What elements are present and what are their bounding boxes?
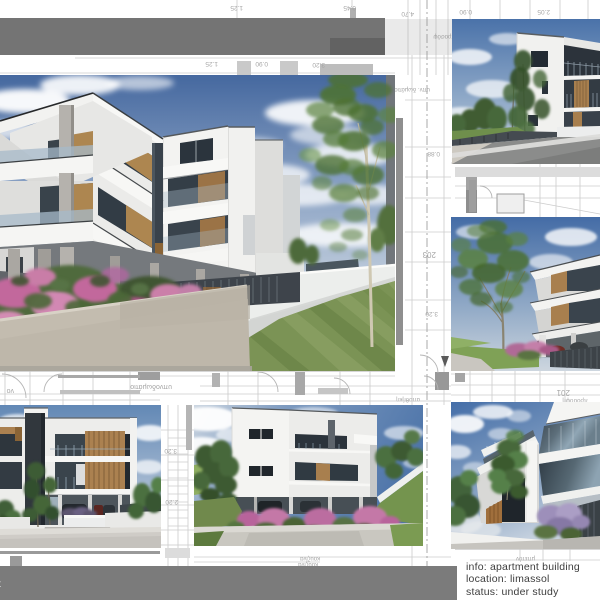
svg-text:0.88: 0.88 [427,150,440,157]
svg-text:1.25: 1.25 [230,4,243,11]
svg-text:κουζίνα: κουζίνα [299,555,320,561]
svg-text:υπν. δωμάτιο: υπν. δωμάτιο [394,86,430,93]
svg-text:1.25: 1.25 [205,60,218,67]
svg-text:0.90: 0.90 [459,8,472,15]
svg-text:3.20: 3.20 [425,310,438,317]
svg-text:3.20: 3.20 [164,447,177,454]
svg-text:203: 203 [422,250,436,259]
svg-text:0.45: 0.45 [343,4,356,11]
svg-text:2.05: 2.05 [537,8,550,15]
svg-text:2.20: 2.20 [165,498,178,505]
svg-text:4.70: 4.70 [401,10,414,17]
svg-text:υπνοδωμάτιο: υπνοδωμάτιο [130,383,172,391]
svg-text:201: 201 [556,388,570,397]
svg-text:0.90: 0.90 [255,60,268,67]
svg-text:αποθήκη: αποθήκη [396,396,420,403]
svg-text:νο: νο [7,387,15,394]
svg-text:3.20: 3.20 [312,61,325,68]
